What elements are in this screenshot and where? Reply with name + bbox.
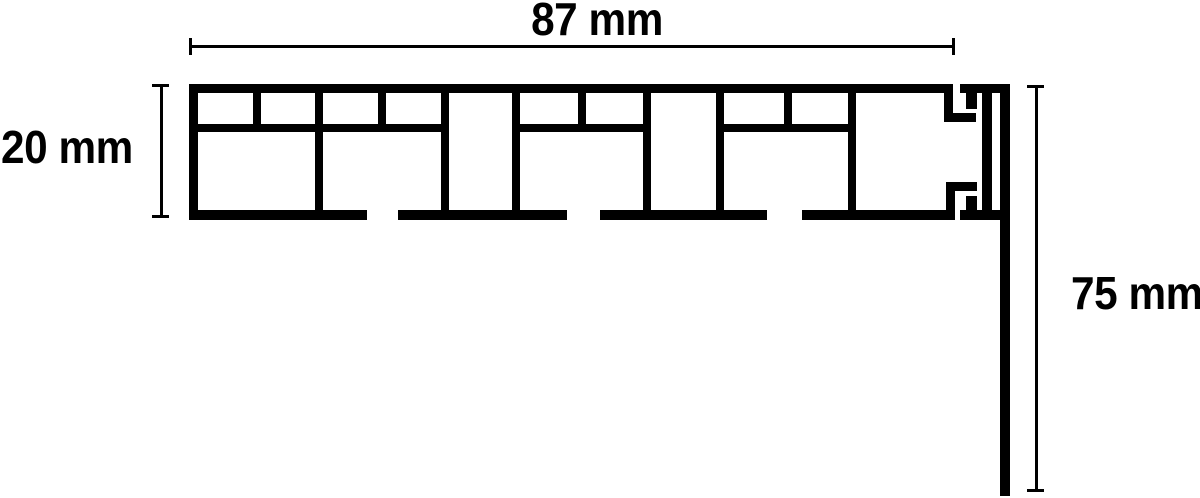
dimension-line <box>160 86 163 216</box>
profile-top-mullion <box>378 84 386 132</box>
profile-wall <box>315 84 323 220</box>
dimension-tick <box>1027 85 1044 88</box>
profile-inner-rib <box>512 124 643 132</box>
dimension-tick <box>152 84 169 87</box>
dimension-height-line <box>152 84 169 218</box>
dimension-tick <box>189 38 192 55</box>
profile-bottom-wall <box>802 210 955 220</box>
profile-drop-leg <box>1000 84 1010 496</box>
dimension-tick <box>152 215 169 218</box>
end-hook-top-foot <box>944 113 976 122</box>
profile-wall <box>441 84 449 220</box>
end-hook-bottom-foot <box>946 182 977 191</box>
profile-bottom-wall <box>398 210 567 220</box>
dimension-line <box>1035 87 1038 491</box>
profile-wall <box>716 84 724 220</box>
profile-top-mullion <box>578 84 586 132</box>
profile-wall <box>643 84 651 220</box>
dimension-tick <box>952 38 955 55</box>
height-dimension-label: 20 mm <box>1 124 133 170</box>
profile-wall <box>512 84 520 220</box>
end-inner-bar <box>982 93 992 218</box>
profile-body <box>189 84 955 220</box>
dimension-tick <box>1027 489 1044 492</box>
width-dimension-label: 87 mm <box>477 0 716 42</box>
profile-top-mullion <box>253 84 261 132</box>
profile-top-mullion <box>784 84 792 132</box>
profile-bottom-wall <box>600 210 767 220</box>
profile-wall <box>848 84 856 220</box>
drop-leg-wall <box>1000 84 1010 496</box>
dimension-drop-line <box>1027 85 1044 492</box>
profile-top-wall <box>189 84 953 93</box>
profile-cross-section-drawing <box>0 0 1200 498</box>
drop-dimension-label: 75 mm <box>1071 270 1200 316</box>
technical-drawing-canvas: 87 mm 20 mm 75 mm <box>0 0 1200 498</box>
profile-bottom-wall <box>189 210 367 220</box>
end-cap-top-hook <box>966 84 977 109</box>
profile-left-wall <box>189 84 198 220</box>
end-cap-bottom-hook <box>966 196 977 220</box>
dimension-line <box>190 45 953 48</box>
